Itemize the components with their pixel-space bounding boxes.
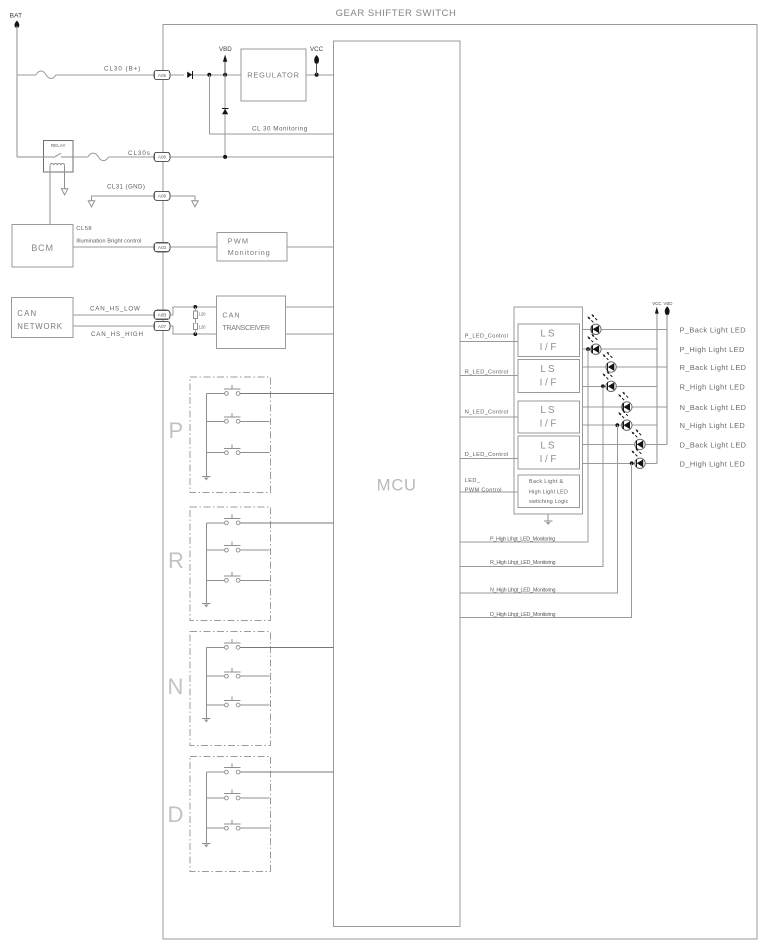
svg-text:CL30 (B+): CL30 (B+) xyxy=(104,66,141,73)
svg-text:D_High Lihgt_LED_Monitoring: D_High Lihgt_LED_Monitoring xyxy=(490,612,556,618)
svg-text:Illumination Bright control: Illumination Bright control xyxy=(76,238,141,244)
svg-text:I/F: I/F xyxy=(540,454,559,465)
svg-text:LS: LS xyxy=(540,364,556,375)
svg-text:LS: LS xyxy=(540,405,556,416)
svg-text:A05: A05 xyxy=(158,73,167,78)
svg-text:D_High Light LED: D_High Light LED xyxy=(680,459,746,468)
svg-text:CAN: CAN xyxy=(222,311,240,320)
svg-text:CL58: CL58 xyxy=(76,226,92,232)
svg-text:LED_: LED_ xyxy=(465,478,481,484)
svg-text:I/F: I/F xyxy=(540,342,559,353)
svg-text:P: P xyxy=(169,418,184,443)
svg-text:R_LED_Control: R_LED_Control xyxy=(465,370,509,376)
svg-text:CL30s: CL30s xyxy=(128,150,151,157)
svg-text:P_High Light LED: P_High Light LED xyxy=(680,345,745,354)
svg-text:A03: A03 xyxy=(158,245,167,250)
svg-text:LS: LS xyxy=(540,329,556,340)
svg-text:TRANSCEIVER: TRANSCEIVER xyxy=(222,323,269,332)
svg-text:120: 120 xyxy=(199,312,207,317)
svg-text:P_LED_Control: P_LED_Control xyxy=(465,334,508,340)
svg-text:CAN_HS_LOW: CAN_HS_LOW xyxy=(90,306,141,313)
svg-text:BAT: BAT xyxy=(10,13,23,20)
svg-text:RELAY: RELAY xyxy=(51,143,66,148)
svg-text:A08: A08 xyxy=(158,194,167,199)
svg-text:N_High Light LED: N_High Light LED xyxy=(680,421,746,430)
svg-text:PWM Control: PWM Control xyxy=(465,487,502,493)
svg-text:N_Back Light LED: N_Back Light LED xyxy=(680,403,747,412)
svg-text:Monitoring: Monitoring xyxy=(228,248,271,257)
svg-text:P_Back Light LED: P_Back Light LED xyxy=(680,325,746,334)
svg-text:CL31 (GND): CL31 (GND) xyxy=(107,184,145,191)
svg-text:High Light LED: High Light LED xyxy=(529,490,568,496)
svg-text:I/F: I/F xyxy=(540,378,559,389)
svg-text:A06: A06 xyxy=(158,155,167,160)
svg-text:BCM: BCM xyxy=(31,243,54,253)
svg-text:LS: LS xyxy=(540,441,556,452)
svg-text:D: D xyxy=(168,802,184,827)
svg-text:switching Logic: switching Logic xyxy=(529,499,569,505)
svg-text:REGULATOR: REGULATOR xyxy=(247,71,300,80)
svg-text:VBD: VBD xyxy=(663,301,672,306)
svg-text:I/F: I/F xyxy=(540,419,559,430)
svg-text:VBD: VBD xyxy=(219,46,232,53)
svg-text:120: 120 xyxy=(199,325,207,330)
svg-text:VCC: VCC xyxy=(652,301,661,306)
svg-text:A0B: A0B xyxy=(158,313,167,318)
svg-text:PWM: PWM xyxy=(228,237,250,246)
svg-text:R_High Light LED: R_High Light LED xyxy=(680,382,746,391)
svg-text:D_Back Light LED: D_Back Light LED xyxy=(680,440,747,449)
svg-text:VCC: VCC xyxy=(310,46,324,53)
svg-text:R_High Lihgt_LED_Monitoring: R_High Lihgt_LED_Monitoring xyxy=(490,560,556,566)
svg-text:R: R xyxy=(168,548,184,573)
svg-text:MCU: MCU xyxy=(377,477,417,495)
svg-text:N_LED_Control: N_LED_Control xyxy=(465,409,509,415)
svg-text:A07: A07 xyxy=(158,324,167,329)
svg-text:CL 30 Monitoring: CL 30 Monitoring xyxy=(252,126,308,133)
svg-text:CAN: CAN xyxy=(17,309,37,318)
svg-text:GEAR SHIFTER SWITCH: GEAR SHIFTER SWITCH xyxy=(336,8,457,19)
svg-text:CAN_HS_HIGH: CAN_HS_HIGH xyxy=(91,331,144,338)
svg-text:Back Light &: Back Light & xyxy=(529,479,564,485)
svg-text:R_Back Light LED: R_Back Light LED xyxy=(680,363,747,372)
svg-text:NETWORK: NETWORK xyxy=(17,322,62,331)
svg-text:N: N xyxy=(168,674,184,699)
svg-text:D_LED_Control: D_LED_Control xyxy=(465,452,509,458)
